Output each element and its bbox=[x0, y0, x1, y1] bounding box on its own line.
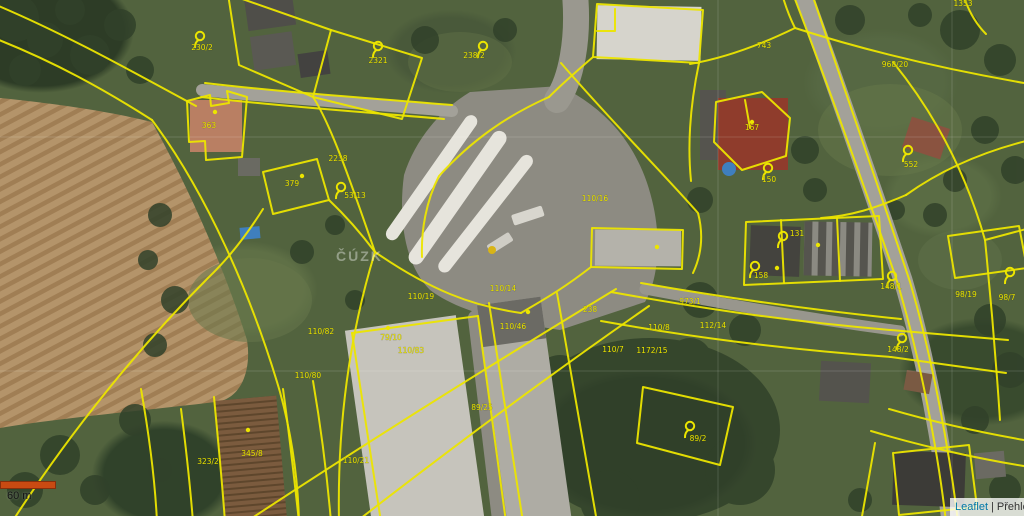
parcel-label: 150 bbox=[762, 175, 777, 184]
parcel-label: 1172/15 bbox=[636, 346, 667, 355]
parcel-label: 743 bbox=[757, 41, 772, 50]
attribution-bar: Leaflet|Přehle bbox=[950, 498, 1024, 516]
map-scene: 230/22321238/2363379223853/13743968/2013… bbox=[0, 0, 1024, 516]
parcel-point-dot bbox=[246, 428, 250, 432]
parcel-label: 552 bbox=[904, 160, 919, 169]
attribution-separator: | bbox=[991, 501, 994, 513]
parcel-label: 110/16 bbox=[582, 194, 609, 203]
parcel-label: 158 bbox=[754, 271, 769, 280]
parcel-label: 968/20 bbox=[882, 60, 909, 69]
parcel-label: 131 bbox=[790, 229, 805, 238]
parcel-label: 79/10 bbox=[380, 333, 402, 342]
parcel-label: 110/82 bbox=[308, 327, 335, 336]
parcel-label: 238/2 bbox=[463, 51, 485, 60]
map-viewport[interactable]: 230/22321238/2363379223853/13743968/2013… bbox=[0, 0, 1024, 516]
building-roof bbox=[297, 50, 330, 78]
parcel-label: 98/19 bbox=[955, 290, 977, 299]
parcel-label: 167 bbox=[745, 123, 760, 132]
parcel-label: 973/1 bbox=[679, 297, 701, 306]
parcel-label: 345/8 bbox=[241, 449, 263, 458]
parcel-label: 323/2 bbox=[197, 457, 219, 466]
parcel-label: 110/21 bbox=[343, 456, 370, 465]
parcel-label: 89/25 bbox=[471, 403, 493, 412]
building-roof bbox=[819, 361, 871, 404]
parcel-label: 2321 bbox=[368, 56, 387, 65]
building-roof bbox=[595, 230, 681, 267]
parcel-label: 2238 bbox=[328, 154, 347, 163]
parcel-label: 110/46 bbox=[500, 322, 527, 331]
parcel-label: 110/7 bbox=[602, 345, 624, 354]
parcel-point-dot bbox=[655, 245, 659, 249]
parcel-label: 363 bbox=[202, 121, 217, 130]
parcel-point-dot bbox=[775, 266, 779, 270]
pool bbox=[722, 162, 736, 176]
parcel-label: 230/2 bbox=[191, 43, 213, 52]
parcel-point-dot bbox=[300, 174, 304, 178]
parcel-label: 112/14 bbox=[700, 321, 727, 330]
parcel-label: 148/2 bbox=[887, 345, 909, 354]
building-roof bbox=[238, 158, 260, 176]
parcel-label: 110/8 bbox=[648, 323, 670, 332]
parcel-label: 238 bbox=[583, 305, 598, 314]
cuzk-watermark: ČÚZK bbox=[336, 248, 383, 264]
building-roof bbox=[974, 451, 1006, 480]
scale-bar bbox=[0, 481, 56, 489]
parcel-point-dot bbox=[213, 110, 217, 114]
parcel-label: 110/19 bbox=[408, 292, 435, 301]
parcel-label: 98/7 bbox=[999, 293, 1016, 302]
parcel-label: 110/14 bbox=[490, 284, 517, 293]
parcel-point-dot bbox=[816, 243, 820, 247]
parcel-label: 148/1 bbox=[880, 282, 902, 291]
parcel-label: 53/13 bbox=[344, 191, 366, 200]
parcel-label: 110/80 bbox=[295, 371, 322, 380]
leaflet-link[interactable]: Leaflet bbox=[955, 501, 988, 513]
parcel-label: 110/83 bbox=[398, 346, 425, 355]
building-roof bbox=[597, 5, 702, 61]
scale-bar-label: 60 m bbox=[7, 490, 31, 502]
yellow-vehicle bbox=[488, 246, 496, 254]
building-roof bbox=[250, 31, 296, 71]
layer-link[interactable]: Přehle bbox=[997, 501, 1024, 513]
parcel-point-dot bbox=[386, 326, 390, 330]
parcel-label: 89/2 bbox=[690, 434, 707, 443]
parcel-point-dot bbox=[526, 310, 530, 314]
parcel-label: 1353 bbox=[953, 0, 972, 8]
parcel-label: 379 bbox=[285, 179, 300, 188]
